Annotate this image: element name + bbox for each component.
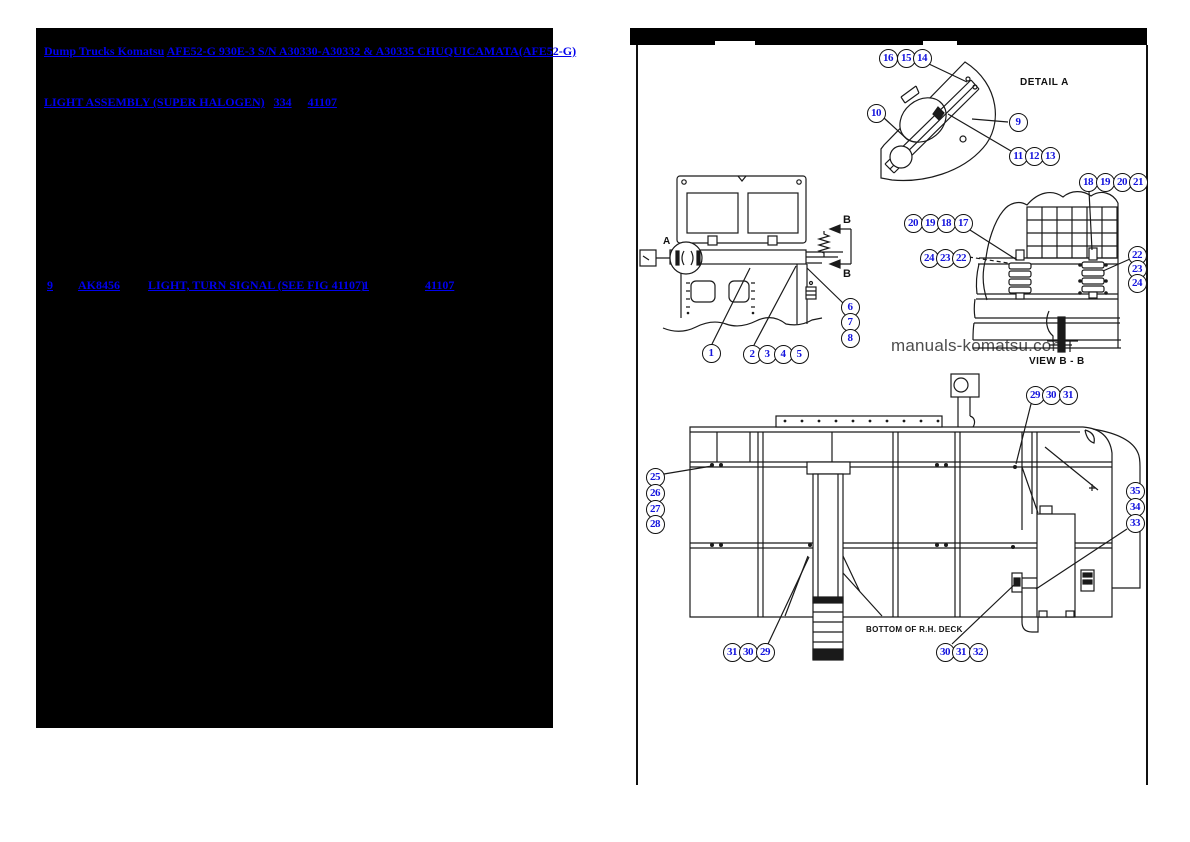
callout-33[interactable]: 33 <box>1126 514 1145 533</box>
callout-22[interactable]: 22 <box>952 249 971 268</box>
callout-1[interactable]: 1 <box>702 344 721 363</box>
front-view-drawing <box>640 176 851 345</box>
section-marker-b-bottom: B <box>843 268 851 280</box>
callout-19[interactable]: 19 <box>1096 173 1115 192</box>
callout-10[interactable]: 10 <box>867 104 886 123</box>
callout-20[interactable]: 20 <box>904 214 923 233</box>
callout-18[interactable]: 18 <box>937 214 956 233</box>
parts-catalog-page: { "left_panel": { "breadcrumb": { "brand… <box>0 0 1190 842</box>
detail-a-drawing <box>881 62 1011 180</box>
callout-8[interactable]: 8 <box>841 329 860 348</box>
callout-28[interactable]: 28 <box>646 515 665 534</box>
section-marker-b-top: B <box>843 214 851 226</box>
callout-32[interactable]: 32 <box>969 643 988 662</box>
callout-21[interactable]: 21 <box>1129 173 1148 192</box>
callout-17[interactable]: 17 <box>954 214 973 233</box>
callout-31[interactable]: 31 <box>952 643 971 662</box>
callout-29[interactable]: 29 <box>756 643 775 662</box>
callout-5[interactable]: 5 <box>790 345 809 364</box>
callout-13[interactable]: 13 <box>1041 147 1060 166</box>
callout-30[interactable]: 30 <box>739 643 758 662</box>
bottom-deck-drawing <box>664 374 1140 660</box>
callout-9[interactable]: 9 <box>1009 113 1028 132</box>
callout-30[interactable]: 30 <box>1042 386 1061 405</box>
section-marker-a: A <box>663 236 670 247</box>
callout-24[interactable]: 24 <box>1128 274 1147 293</box>
detail-a-label: DETAIL A <box>1020 77 1069 88</box>
view-bb-drawing <box>969 191 1130 352</box>
bottom-deck-label: BOTTOM OF R.H. DECK <box>866 625 963 634</box>
callout-14[interactable]: 14 <box>913 49 932 68</box>
callout-31[interactable]: 31 <box>1059 386 1078 405</box>
callout-18[interactable]: 18 <box>1079 173 1098 192</box>
callout-16[interactable]: 16 <box>879 49 898 68</box>
view-bb-label: VIEW B - B <box>1029 356 1085 367</box>
